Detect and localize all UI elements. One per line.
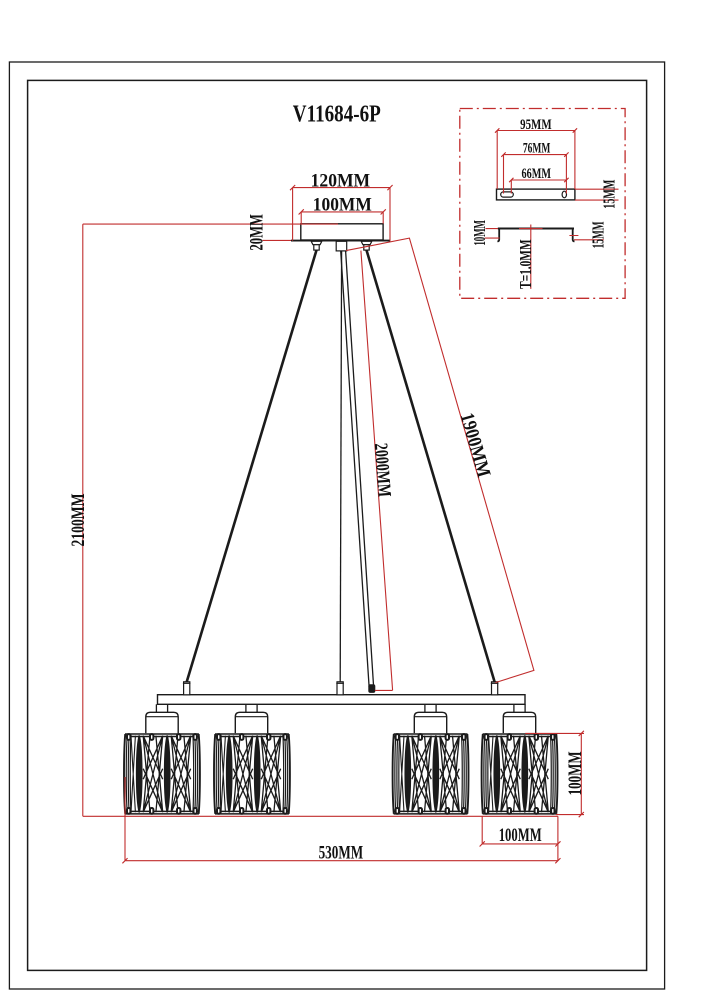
svg-text:V11684-6P: V11684-6P: [293, 101, 381, 127]
svg-text:100MM: 100MM: [565, 751, 586, 795]
svg-text:530MM: 530MM: [319, 843, 364, 864]
svg-text:2000MM: 2000MM: [370, 442, 395, 497]
svg-text:2100MM: 2100MM: [68, 493, 89, 546]
svg-text:10MM: 10MM: [470, 220, 489, 246]
svg-text:15MM: 15MM: [589, 221, 608, 248]
svg-text:100MM: 100MM: [499, 825, 542, 846]
svg-text:15MM: 15MM: [599, 180, 618, 209]
svg-text:100MM: 100MM: [313, 195, 372, 216]
svg-text:120MM: 120MM: [311, 170, 371, 191]
svg-text:T=1.0MM: T=1.0MM: [516, 239, 535, 289]
svg-text:20MM: 20MM: [246, 214, 267, 251]
svg-text:66MM: 66MM: [522, 166, 552, 182]
svg-text:76MM: 76MM: [523, 140, 551, 156]
svg-text:95MM: 95MM: [520, 117, 552, 133]
